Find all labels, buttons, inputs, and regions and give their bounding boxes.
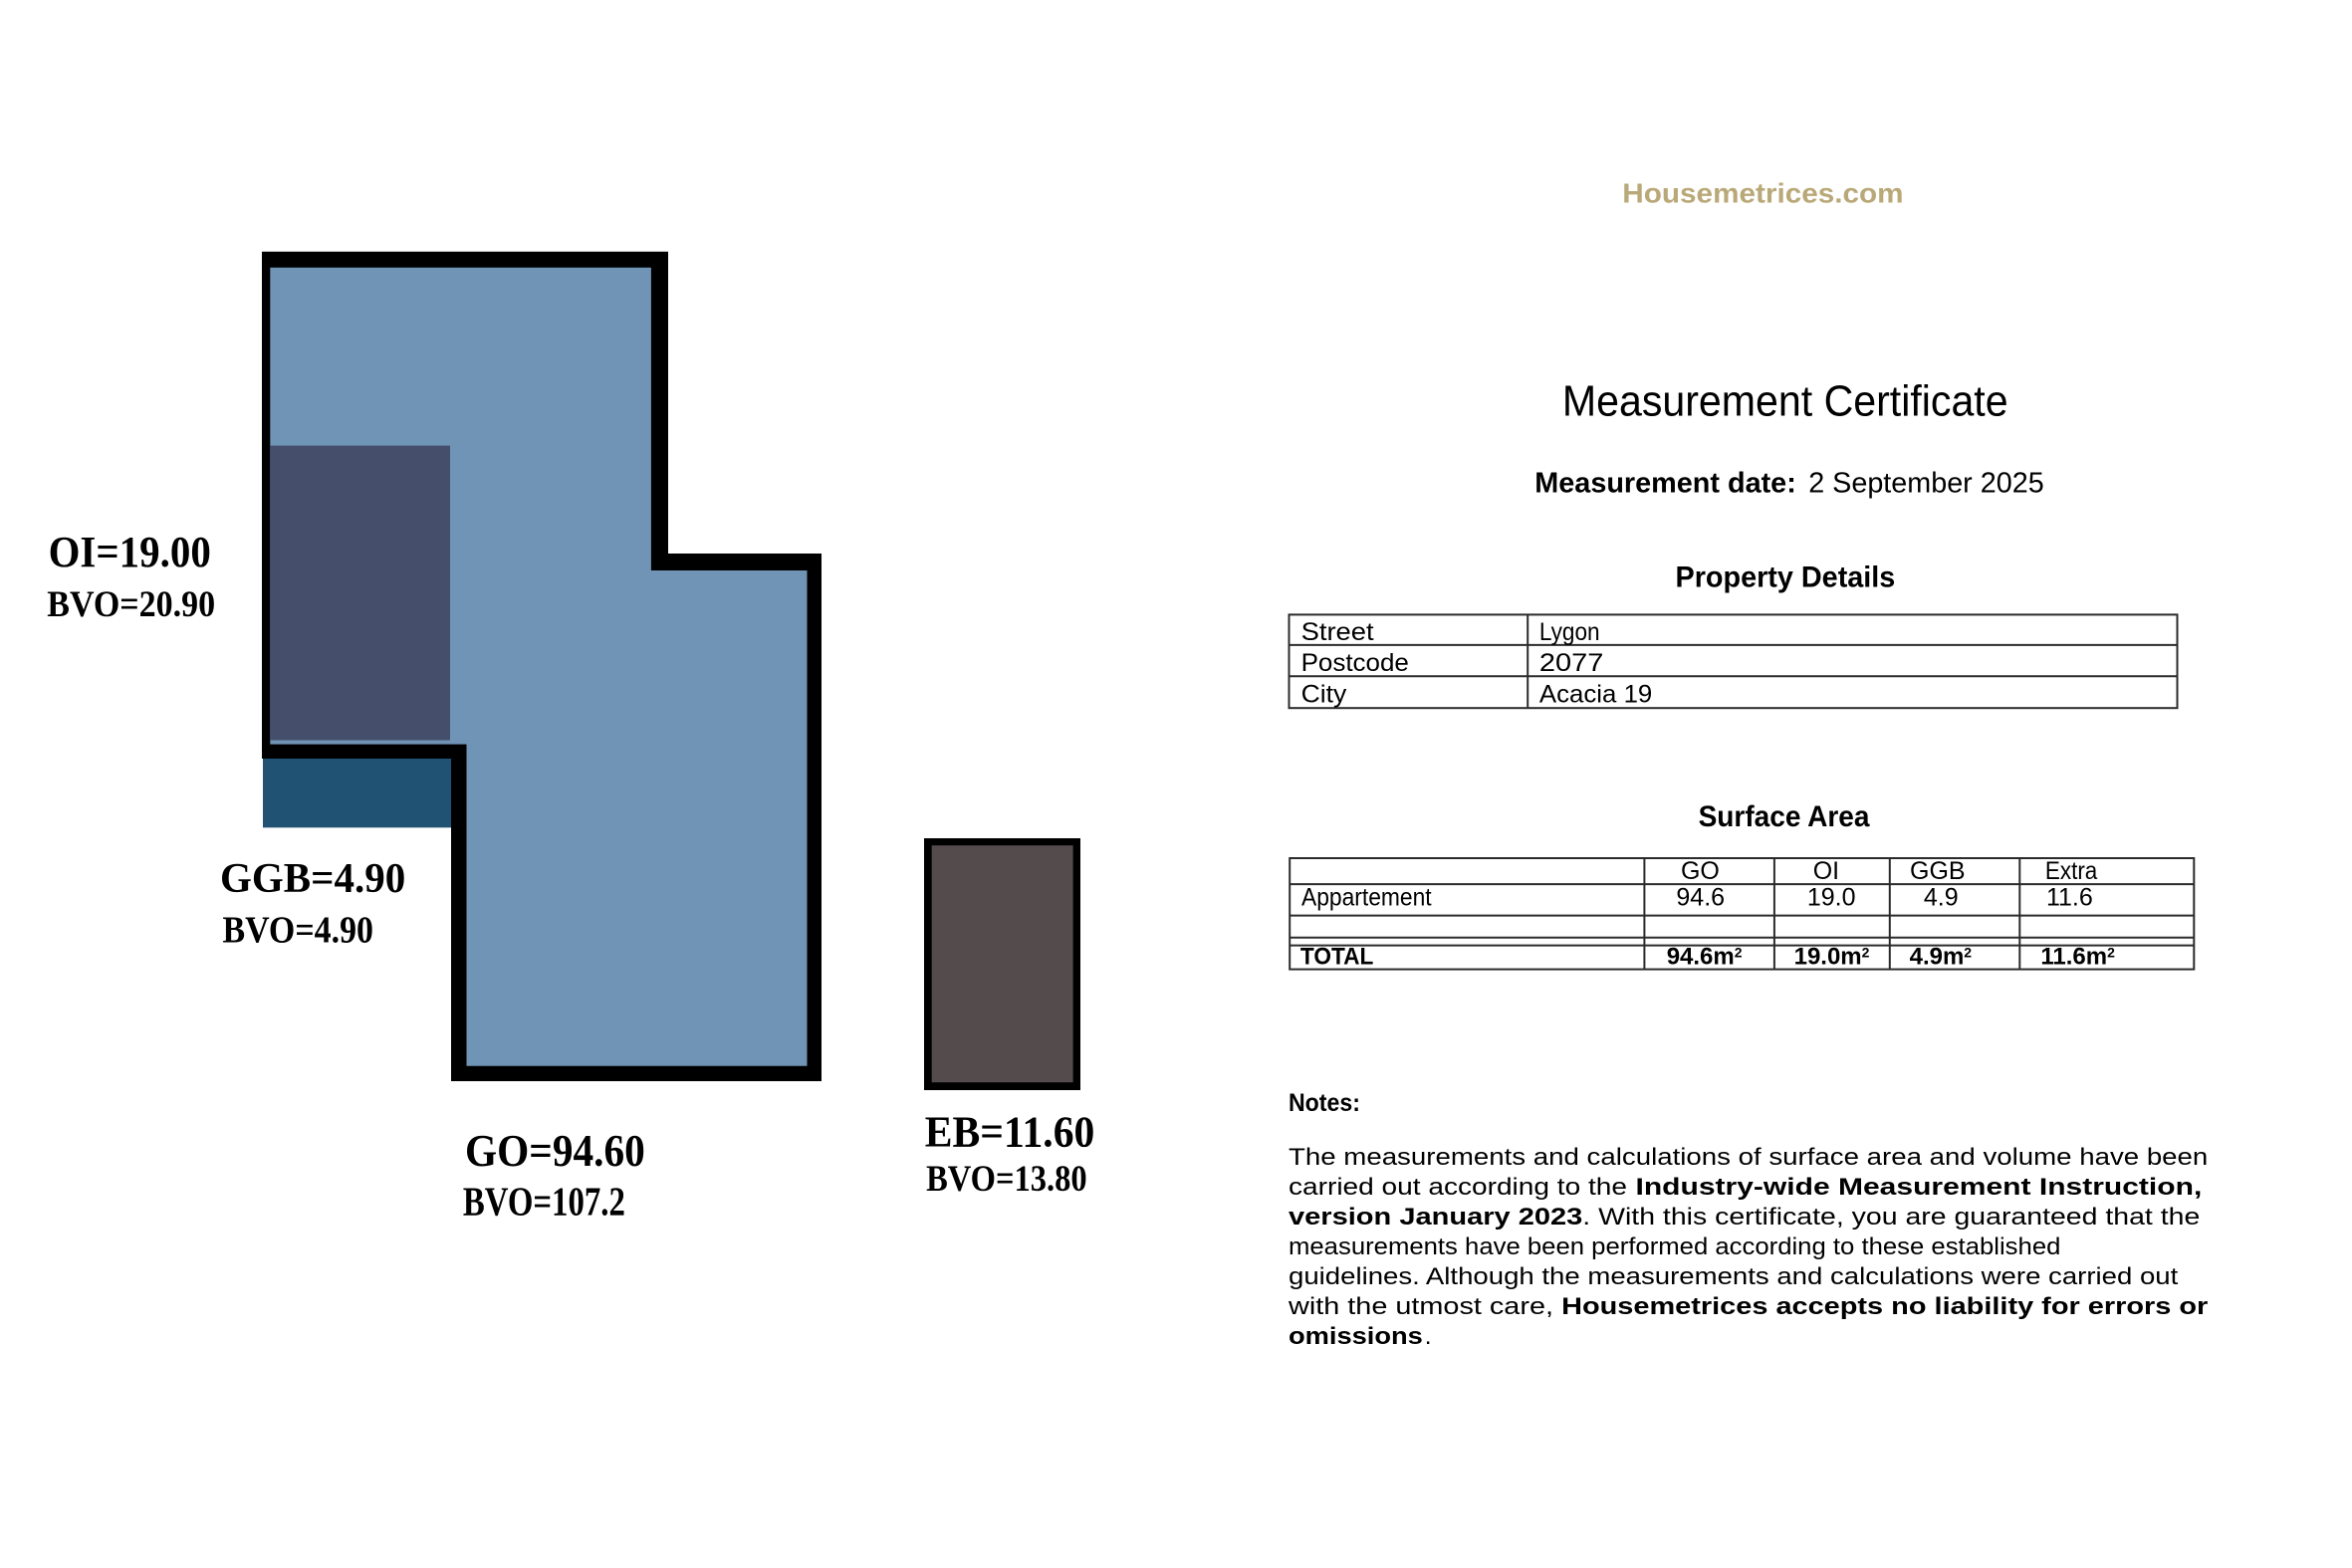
svg-text:version January 2023: version January 2023 — [1289, 1204, 1582, 1231]
svg-text:Property Details: Property Details — [1676, 560, 1896, 593]
svg-text:Notes:: Notes: — [1289, 1089, 1360, 1117]
svg-text:Surface Area: Surface Area — [1699, 800, 1870, 833]
svg-text:City: City — [1301, 681, 1347, 709]
svg-text:. With this certificate, you a: . With this certificate, you are guarant… — [1582, 1204, 2200, 1231]
svg-text:BVO=107.2: BVO=107.2 — [463, 1179, 625, 1225]
svg-text:TOTAL: TOTAL — [1300, 944, 1373, 971]
svg-text:omissions: omissions — [1289, 1323, 1423, 1350]
svg-text:11.6: 11.6 — [2046, 883, 2093, 911]
svg-text:with the utmost care,: with the utmost care, — [1288, 1293, 1553, 1320]
svg-text:Acacia 19: Acacia 19 — [1539, 681, 1652, 709]
svg-text:measurements have been perform: measurements have been performed accordi… — [1289, 1233, 2060, 1260]
svg-text:carried out according to the: carried out according to the — [1289, 1174, 1627, 1201]
svg-text:4.9m2: 4.9m2 — [1910, 944, 1973, 971]
svg-text:4.9: 4.9 — [1924, 883, 1959, 911]
svg-text:GO=94.60: GO=94.60 — [465, 1126, 645, 1176]
svg-text:EB=11.60: EB=11.60 — [925, 1109, 1095, 1157]
svg-text:19.0: 19.0 — [1807, 883, 1856, 911]
svg-text:GGB: GGB — [1910, 857, 1966, 885]
svg-text:Street: Street — [1301, 618, 1374, 646]
svg-text:The measurements and calculati: The measurements and calculations of sur… — [1289, 1144, 2208, 1171]
svg-text:GO: GO — [1681, 857, 1720, 885]
svg-text:Lygon: Lygon — [1539, 618, 1600, 646]
svg-text:Housemetrices.com: Housemetrices.com — [1622, 177, 1903, 208]
svg-text:OI: OI — [1813, 857, 1839, 885]
svg-text:OI=19.00: OI=19.00 — [49, 527, 211, 576]
svg-text:2077: 2077 — [1539, 649, 1604, 677]
svg-text:Housemetrices accepts no liabi: Housemetrices accepts no liability for e… — [1561, 1293, 2209, 1320]
svg-text:.: . — [1425, 1323, 1432, 1350]
svg-text:BVO=13.80: BVO=13.80 — [926, 1159, 1087, 1200]
svg-text:11.6m2: 11.6m2 — [2040, 944, 2115, 971]
svg-text:94.6: 94.6 — [1676, 883, 1725, 911]
svg-text:Industry-wide Measurement Inst: Industry-wide Measurement Instruction, — [1636, 1174, 2203, 1201]
svg-text:BVO=4.90: BVO=4.90 — [223, 909, 374, 951]
svg-text:Appartement: Appartement — [1301, 883, 1432, 911]
svg-text:Measurement Certificate: Measurement Certificate — [1562, 376, 2008, 425]
svg-text:2 September 2025: 2 September 2025 — [1808, 467, 2044, 499]
svg-text:GGB=4.90: GGB=4.90 — [220, 855, 405, 902]
svg-text:Postcode: Postcode — [1301, 649, 1409, 677]
svg-text:94.6m2: 94.6m2 — [1667, 944, 1743, 971]
svg-text:BVO=20.90: BVO=20.90 — [47, 583, 215, 624]
svg-text:Extra: Extra — [2045, 857, 2097, 885]
svg-text:Measurement date:: Measurement date: — [1534, 467, 1796, 499]
svg-text:guidelines. Although the measu: guidelines. Although the measurements an… — [1289, 1263, 2179, 1290]
svg-text:19.0m2: 19.0m2 — [1794, 944, 1870, 971]
